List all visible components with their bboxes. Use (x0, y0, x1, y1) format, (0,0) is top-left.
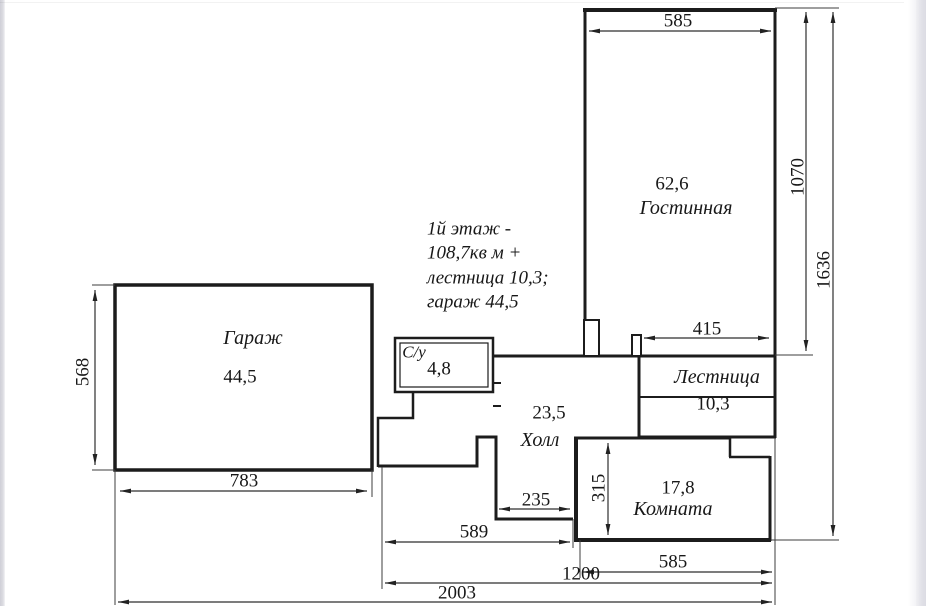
room-name-wc: С/у (402, 344, 426, 361)
room-area-garage: 44,5 (223, 368, 256, 387)
room-name-garage: Гараж (223, 328, 282, 348)
dim-label-hall-width: 589 (460, 523, 489, 542)
dim-label-garage-height: 568 (74, 358, 93, 387)
dim-label-room-width: 585 (659, 553, 688, 572)
room-area-hall: 23,5 (532, 404, 565, 423)
dim-label-room-height: 315 (590, 474, 609, 503)
note-line-1: 1й этаж - (427, 220, 511, 239)
room-area-room: 17,8 (661, 479, 694, 498)
room-name-stairs: Лестница (674, 367, 760, 387)
dim-label-stairs-width: 415 (693, 320, 722, 339)
room-area-wc: 4,8 (427, 360, 451, 379)
dim-label-garage-width: 783 (230, 472, 259, 491)
dim-label-living-width: 585 (664, 12, 693, 31)
note-line-3: лестница 10,3; (427, 269, 549, 288)
room-area-living: 62,6 (655, 175, 688, 194)
room-name-hall: Холл (521, 430, 560, 450)
room-name-room: Комната (633, 499, 712, 519)
dim-label-living-height: 1070 (789, 158, 808, 196)
dim-label-total-width: 2003 (438, 584, 476, 603)
room-area-stairs: 10,3 (696, 395, 729, 414)
note-line-4: гараж 44,5 (427, 293, 519, 312)
note-line-2: 108,7кв м + (427, 244, 521, 263)
dim-label-total-height: 1636 (815, 251, 834, 289)
dim-label-wing-width: 1200 (562, 565, 600, 584)
room-name-living: Гостинная (640, 198, 733, 218)
dim-label-niche-width: 235 (522, 491, 551, 510)
floorplan-page: 585 1070 1636 415 568 783 235 589 315 58… (0, 0, 926, 606)
